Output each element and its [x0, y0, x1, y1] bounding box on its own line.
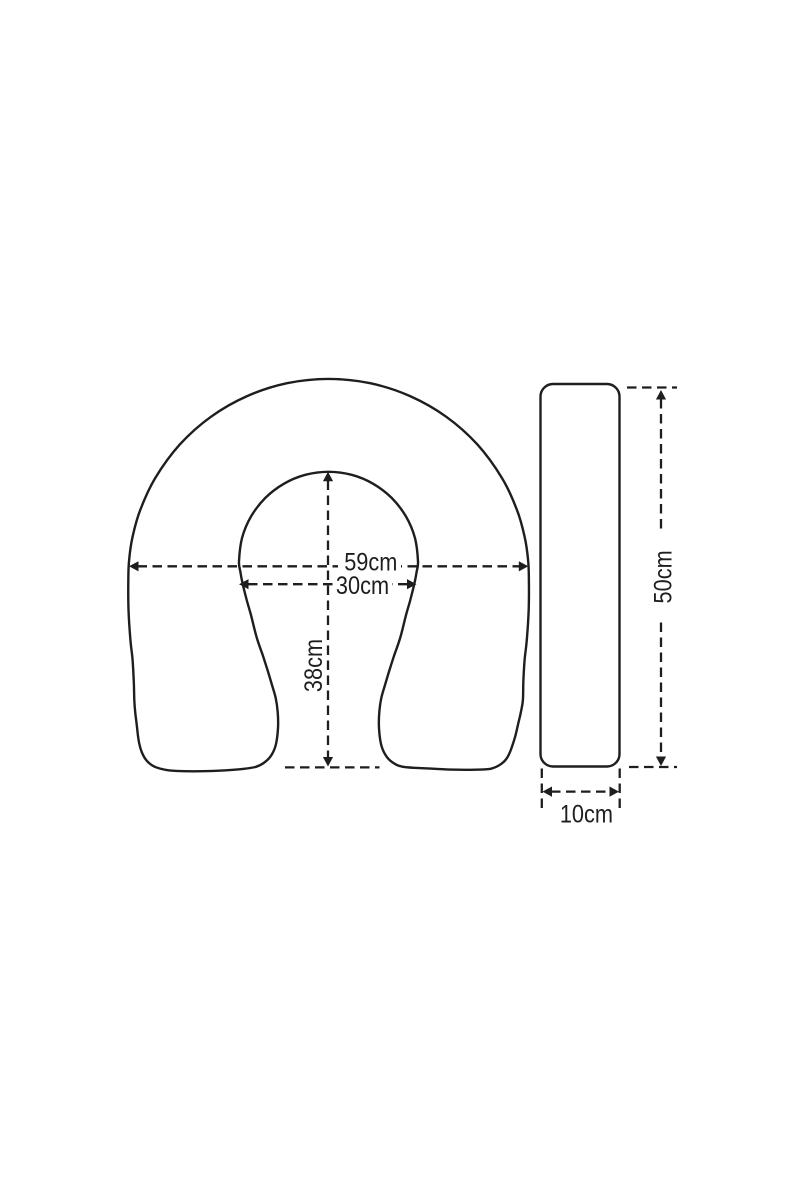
svg-text:38cm: 38cm: [299, 639, 327, 692]
svg-text:50cm: 50cm: [649, 550, 677, 603]
svg-text:30cm: 30cm: [336, 571, 389, 599]
svg-text:10cm: 10cm: [560, 800, 613, 828]
